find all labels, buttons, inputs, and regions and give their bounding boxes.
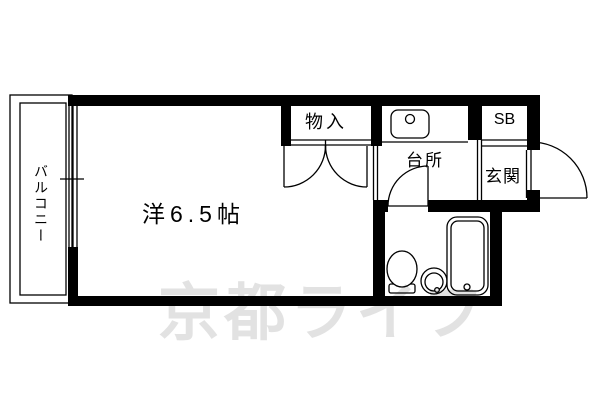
wall-kitchen-bottom-stub	[373, 200, 388, 212]
wall-closet-right	[371, 103, 382, 146]
wall-kitchen-shoebox	[468, 106, 482, 140]
wall-bottom	[68, 296, 502, 306]
partition-room-kitchen	[374, 146, 378, 200]
wall-bathroom-right	[490, 212, 502, 296]
entrance-label: 玄関	[479, 162, 527, 187]
balcony-label: バルコニー	[31, 164, 51, 244]
bathtub-icon	[447, 217, 488, 295]
kitchen-sink-icon	[391, 110, 429, 138]
floor-plan-drawing	[0, 0, 600, 400]
closet-label: 物入	[281, 108, 371, 134]
wall-entrance-bottom	[428, 200, 534, 212]
closet-double-door-icon	[284, 140, 371, 187]
wash-basin-icon	[421, 268, 447, 294]
entrance-door-icon	[527, 142, 588, 198]
floor-plan: バルコニー 洋6.5帖 物入 台所 SB 玄関 京都ライフ	[0, 0, 600, 400]
wall-top	[68, 95, 540, 106]
shoebox-bottom-edge	[482, 140, 527, 146]
kitchen-label: 台所	[380, 146, 470, 171]
toilet-icon	[387, 251, 417, 293]
bathroom-door-icon	[388, 166, 428, 206]
main-room-label: 洋6.5帖	[142, 195, 245, 229]
wall-bathroom-left	[373, 212, 385, 296]
shoe-box-label: SB	[482, 111, 527, 129]
